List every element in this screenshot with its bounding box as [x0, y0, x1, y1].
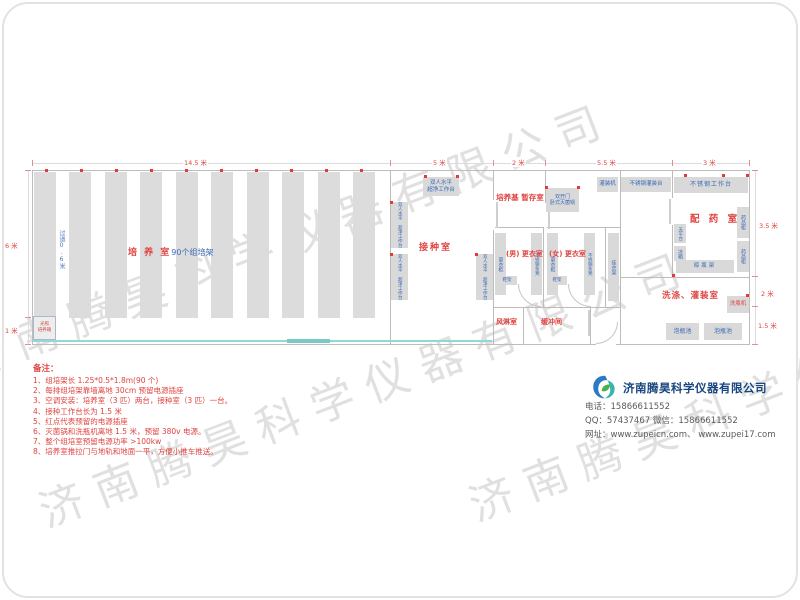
floorplan-page: 济南腾昊科学仪器有限公司 济南腾昊科学仪器有限公司 济南腾昊科学仪器有限公司 培… [0, 0, 800, 600]
page-frame [2, 2, 798, 598]
